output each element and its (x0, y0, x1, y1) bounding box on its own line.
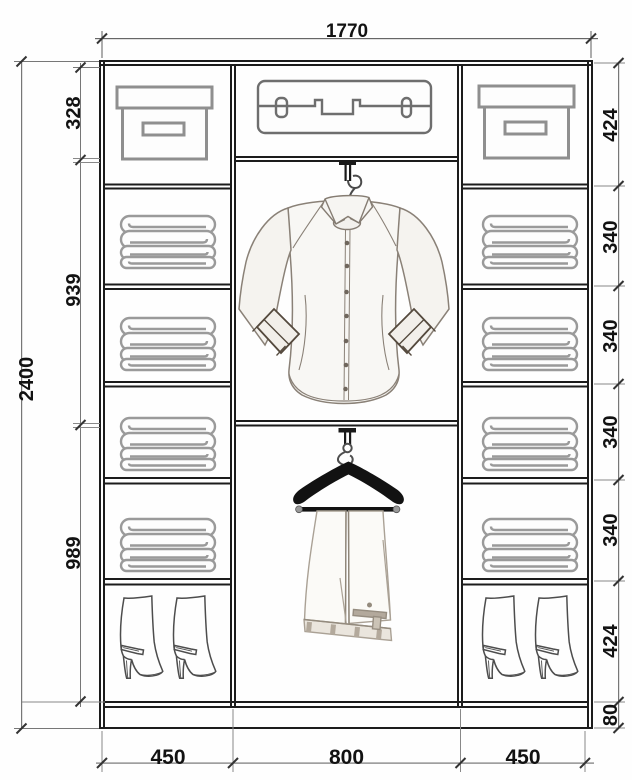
svg-text:424: 424 (600, 623, 622, 657)
svg-text:328: 328 (63, 96, 85, 129)
svg-text:424: 424 (600, 107, 622, 141)
svg-text:1770: 1770 (326, 21, 368, 42)
svg-text:989: 989 (63, 536, 85, 569)
svg-text:2400: 2400 (16, 357, 38, 402)
svg-text:800: 800 (329, 746, 364, 769)
svg-text:450: 450 (505, 746, 540, 769)
svg-text:340: 340 (600, 319, 622, 352)
svg-text:450: 450 (150, 746, 185, 769)
svg-text:340: 340 (600, 415, 622, 448)
svg-text:340: 340 (600, 220, 622, 253)
svg-text:340: 340 (600, 513, 622, 546)
svg-text:939: 939 (63, 273, 85, 306)
svg-text:80: 80 (600, 704, 622, 726)
